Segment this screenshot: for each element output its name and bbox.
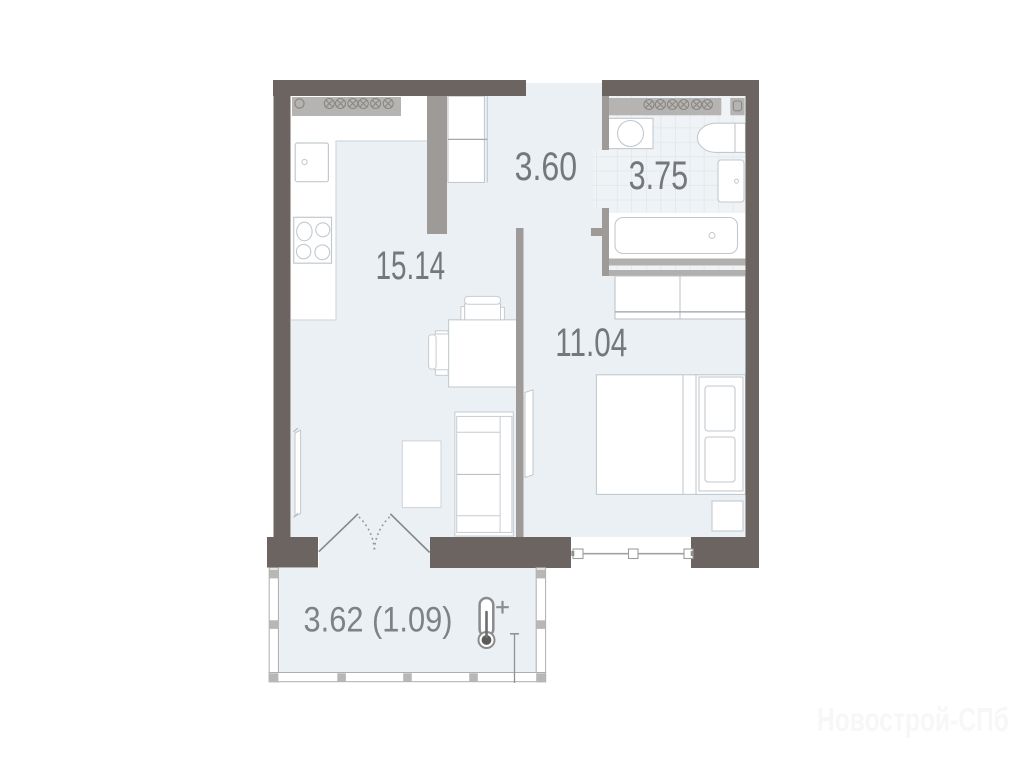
svg-text:Новострой-СПб: Новострой-СПб bbox=[817, 701, 1009, 738]
svg-text:3.75: 3.75 bbox=[629, 154, 689, 198]
svg-text:11.04: 11.04 bbox=[555, 321, 627, 365]
svg-text:3.62 (1.09): 3.62 (1.09) bbox=[304, 600, 453, 640]
svg-text:3.60: 3.60 bbox=[515, 145, 578, 189]
svg-text:15.14: 15.14 bbox=[376, 244, 446, 288]
